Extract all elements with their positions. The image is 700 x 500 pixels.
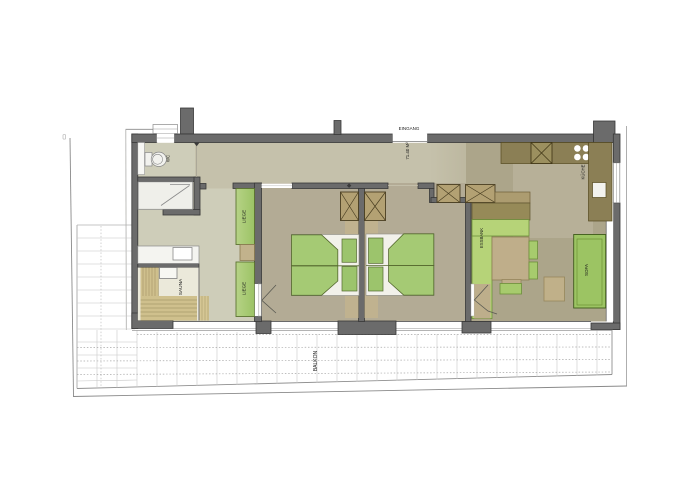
svg-text:ESSBANK: ESSBANK: [479, 228, 484, 248]
svg-text:WC: WC: [166, 155, 171, 162]
svg-text:LIEGE: LIEGE: [242, 282, 247, 295]
svg-text:EINGANG: EINGANG: [399, 126, 420, 131]
svg-text:BALKON: BALKON: [313, 350, 319, 371]
svg-text:71.40 M²: 71.40 M²: [405, 142, 410, 160]
svg-text:SOFA: SOFA: [584, 264, 589, 276]
svg-text:LIEGE: LIEGE: [242, 210, 247, 223]
svg-text:KÜCHE: KÜCHE: [581, 164, 586, 179]
svg-text:SAUNA: SAUNA: [178, 278, 184, 295]
